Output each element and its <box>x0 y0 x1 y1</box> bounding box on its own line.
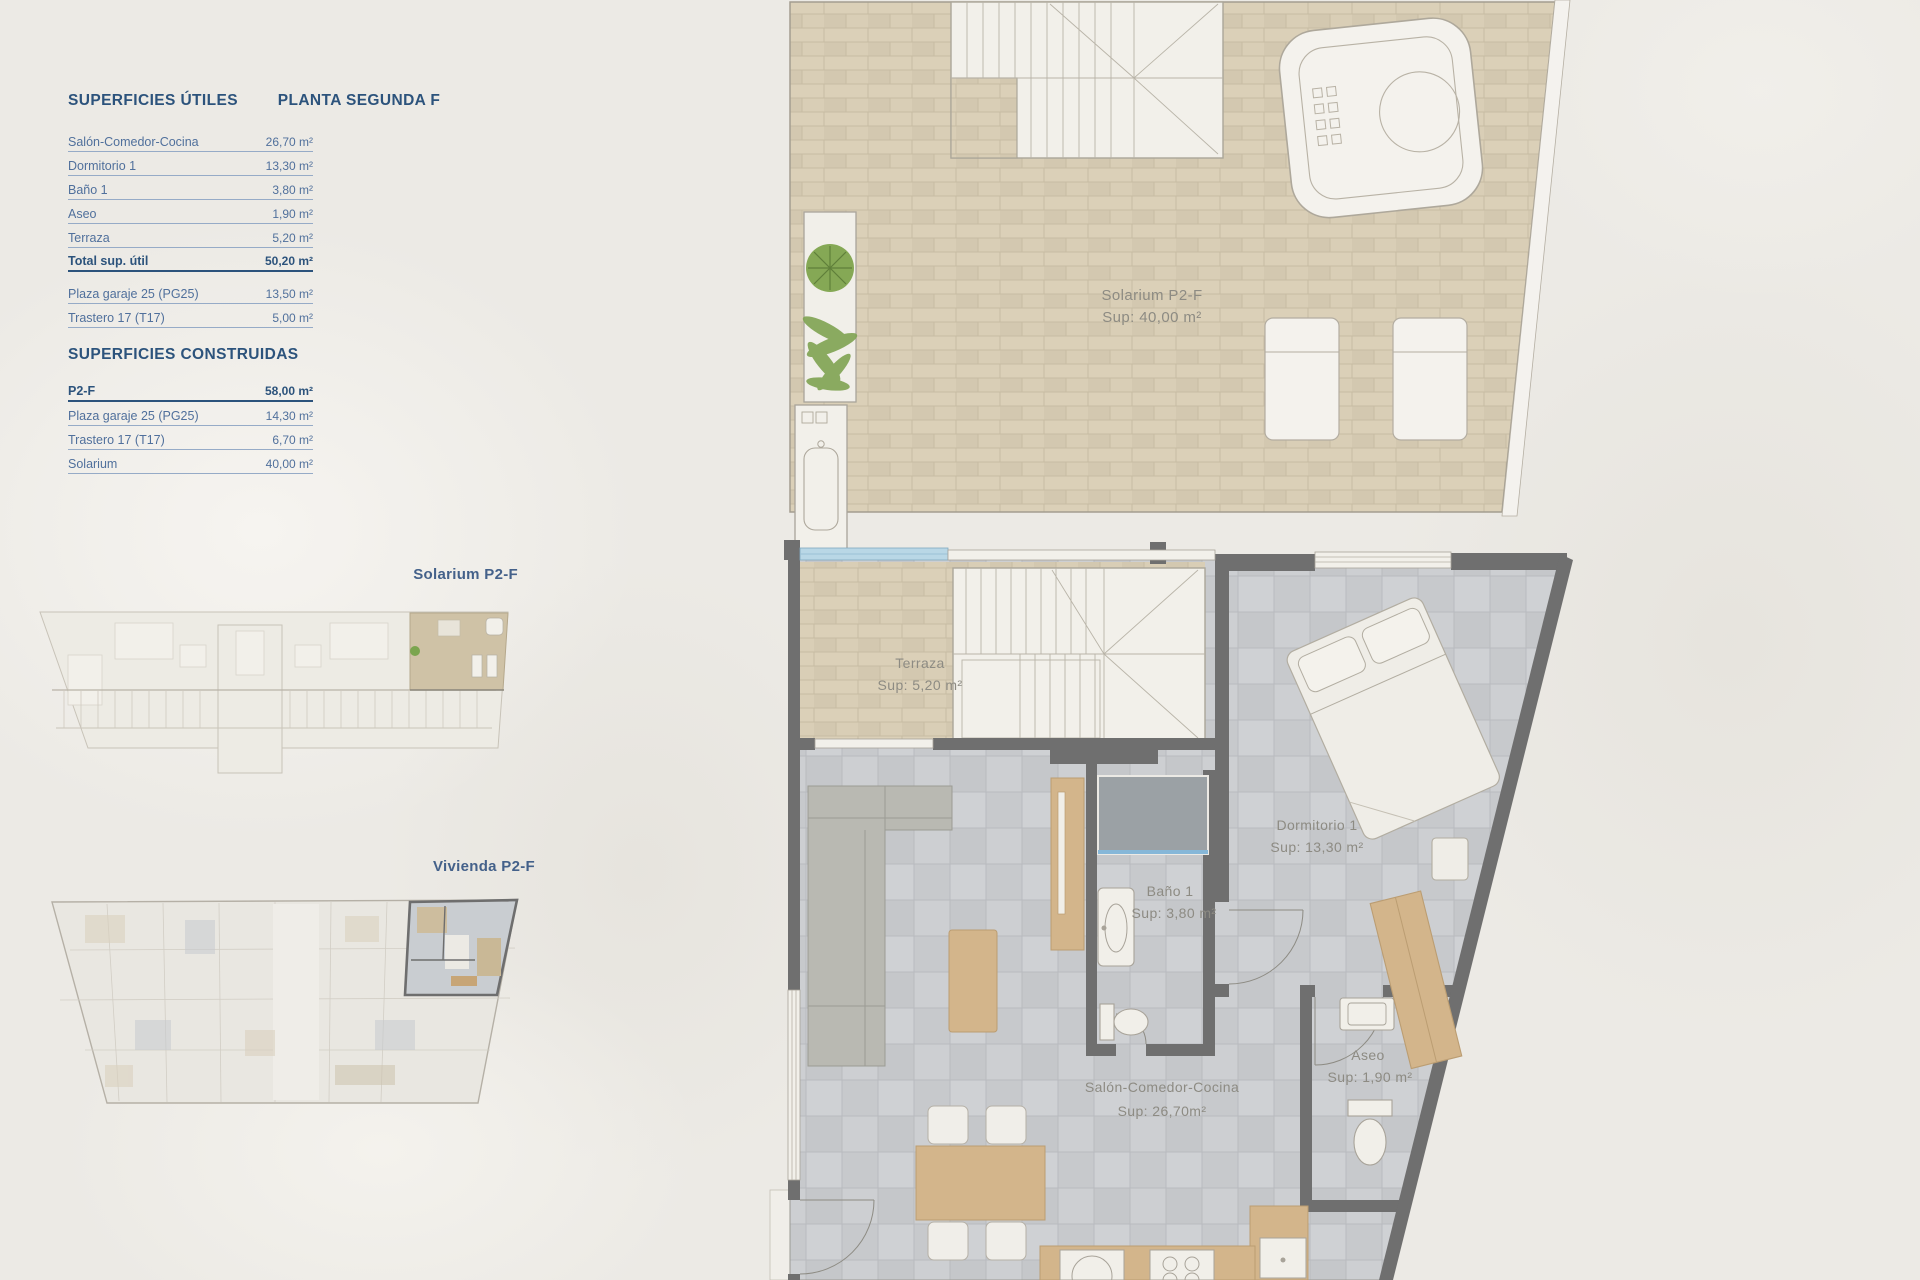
salon-area-label: Sup: 26,70m² <box>1118 1103 1207 1119</box>
salon-name-label: Salón-Comedor-Cocina <box>1085 1079 1239 1095</box>
table-row: Dormitorio 113,30 m² <box>68 152 313 176</box>
aseo-sink <box>1340 998 1394 1030</box>
aseo-name-label: Aseo <box>1351 1047 1385 1063</box>
solarium-name-label: Solarium P2-F <box>1101 287 1202 304</box>
shower <box>1098 776 1208 854</box>
table-row: Salón-Comedor-Cocina26,70 m² <box>68 128 313 152</box>
shower-glass <box>1098 850 1208 854</box>
hob <box>1150 1250 1214 1280</box>
living-window <box>788 990 800 1180</box>
mini-corridor <box>273 904 319 1100</box>
table-row: P2-F58,00 m² <box>68 378 313 402</box>
terraza-area-label: Sup: 5,20 m² <box>878 677 963 693</box>
table-row: Plaza garaje 25 (PG25)14,30 m² <box>68 402 313 426</box>
floor-title: PLANTA SEGUNDA F <box>278 92 441 109</box>
dining-table <box>916 1146 1045 1220</box>
coffee-table <box>949 930 997 1032</box>
outdoor-sink <box>795 405 847 551</box>
terrace-door-glass <box>815 739 933 748</box>
table-row: Trastero 17 (T17)5,00 m² <box>68 304 313 328</box>
bano-area-label: Sup: 3,80 m² <box>1132 905 1217 921</box>
table-row: Aseo1,90 m² <box>68 200 313 224</box>
solarium-floor-plan: Solarium P2-F Sup: 40,00 m² <box>780 0 1570 556</box>
planter <box>800 212 860 402</box>
dormitorio-area-label: Sup: 13,30 m² <box>1270 839 1363 855</box>
bedside-table <box>1432 838 1468 880</box>
table-row: Terraza5,20 m² <box>68 224 313 248</box>
bano-name-label: Baño 1 <box>1147 883 1194 899</box>
solarium-area-label: Sup: 40,00 m² <box>1102 309 1201 326</box>
mini-highlighted-solarium-unit <box>410 613 508 690</box>
mini-vivienda-keyplan <box>45 880 530 1120</box>
stairwell <box>953 568 1205 740</box>
built-surfaces-table: P2-F58,00 m² Plaza garaje 25 (PG25)14,30… <box>68 378 313 474</box>
mini-solarium-label: Solarium P2-F <box>393 566 518 583</box>
communal-landing <box>770 1190 790 1280</box>
brochure-page: SUPERFICIES ÚTILES PLANTA SEGUNDA F Saló… <box>0 0 1920 1280</box>
useful-surfaces-header: SUPERFICIES ÚTILES PLANTA SEGUNDA F <box>68 92 313 114</box>
table-row: Baño 13,80 m² <box>68 176 313 200</box>
surface-tables: SUPERFICIES ÚTILES PLANTA SEGUNDA F Saló… <box>68 92 313 474</box>
aseo-area-label: Sup: 1,90 m² <box>1328 1069 1413 1085</box>
terraza-name-label: Terraza <box>895 655 944 671</box>
table-row: Trastero 17 (T17)6,70 m² <box>68 426 313 450</box>
mini-plant-icon <box>410 646 420 656</box>
built-surfaces-title: SUPERFICIES CONSTRUIDAS <box>68 346 313 368</box>
table-row: Solarium40,00 m² <box>68 450 313 474</box>
useful-surfaces-title: SUPERFICIES ÚTILES <box>68 92 273 110</box>
mini-solarium-keyplan <box>40 595 520 820</box>
bathroom-sink <box>1098 888 1134 966</box>
mini-highlighted-vivienda-unit <box>405 900 517 995</box>
apartment-floor-plan: Terraza Sup: 5,20 m² Dormitorio 1 Sup: 1… <box>770 540 1580 1280</box>
stairwell <box>951 2 1223 158</box>
washer <box>1060 1250 1124 1280</box>
bedroom-window <box>1315 552 1451 568</box>
jacuzzi <box>1276 14 1487 221</box>
dormitorio-name-label: Dormitorio 1 <box>1276 817 1357 833</box>
table-row: Plaza garaje 25 (PG25)13,50 m² <box>68 280 313 304</box>
mini-vivienda-label: Vivienda P2-F <box>405 858 535 875</box>
tv-unit <box>1051 778 1084 950</box>
table-total-row: Total sup. útil50,20 m² <box>68 248 313 272</box>
useful-surfaces-table: Salón-Comedor-Cocina26,70 m² Dormitorio … <box>68 128 313 328</box>
